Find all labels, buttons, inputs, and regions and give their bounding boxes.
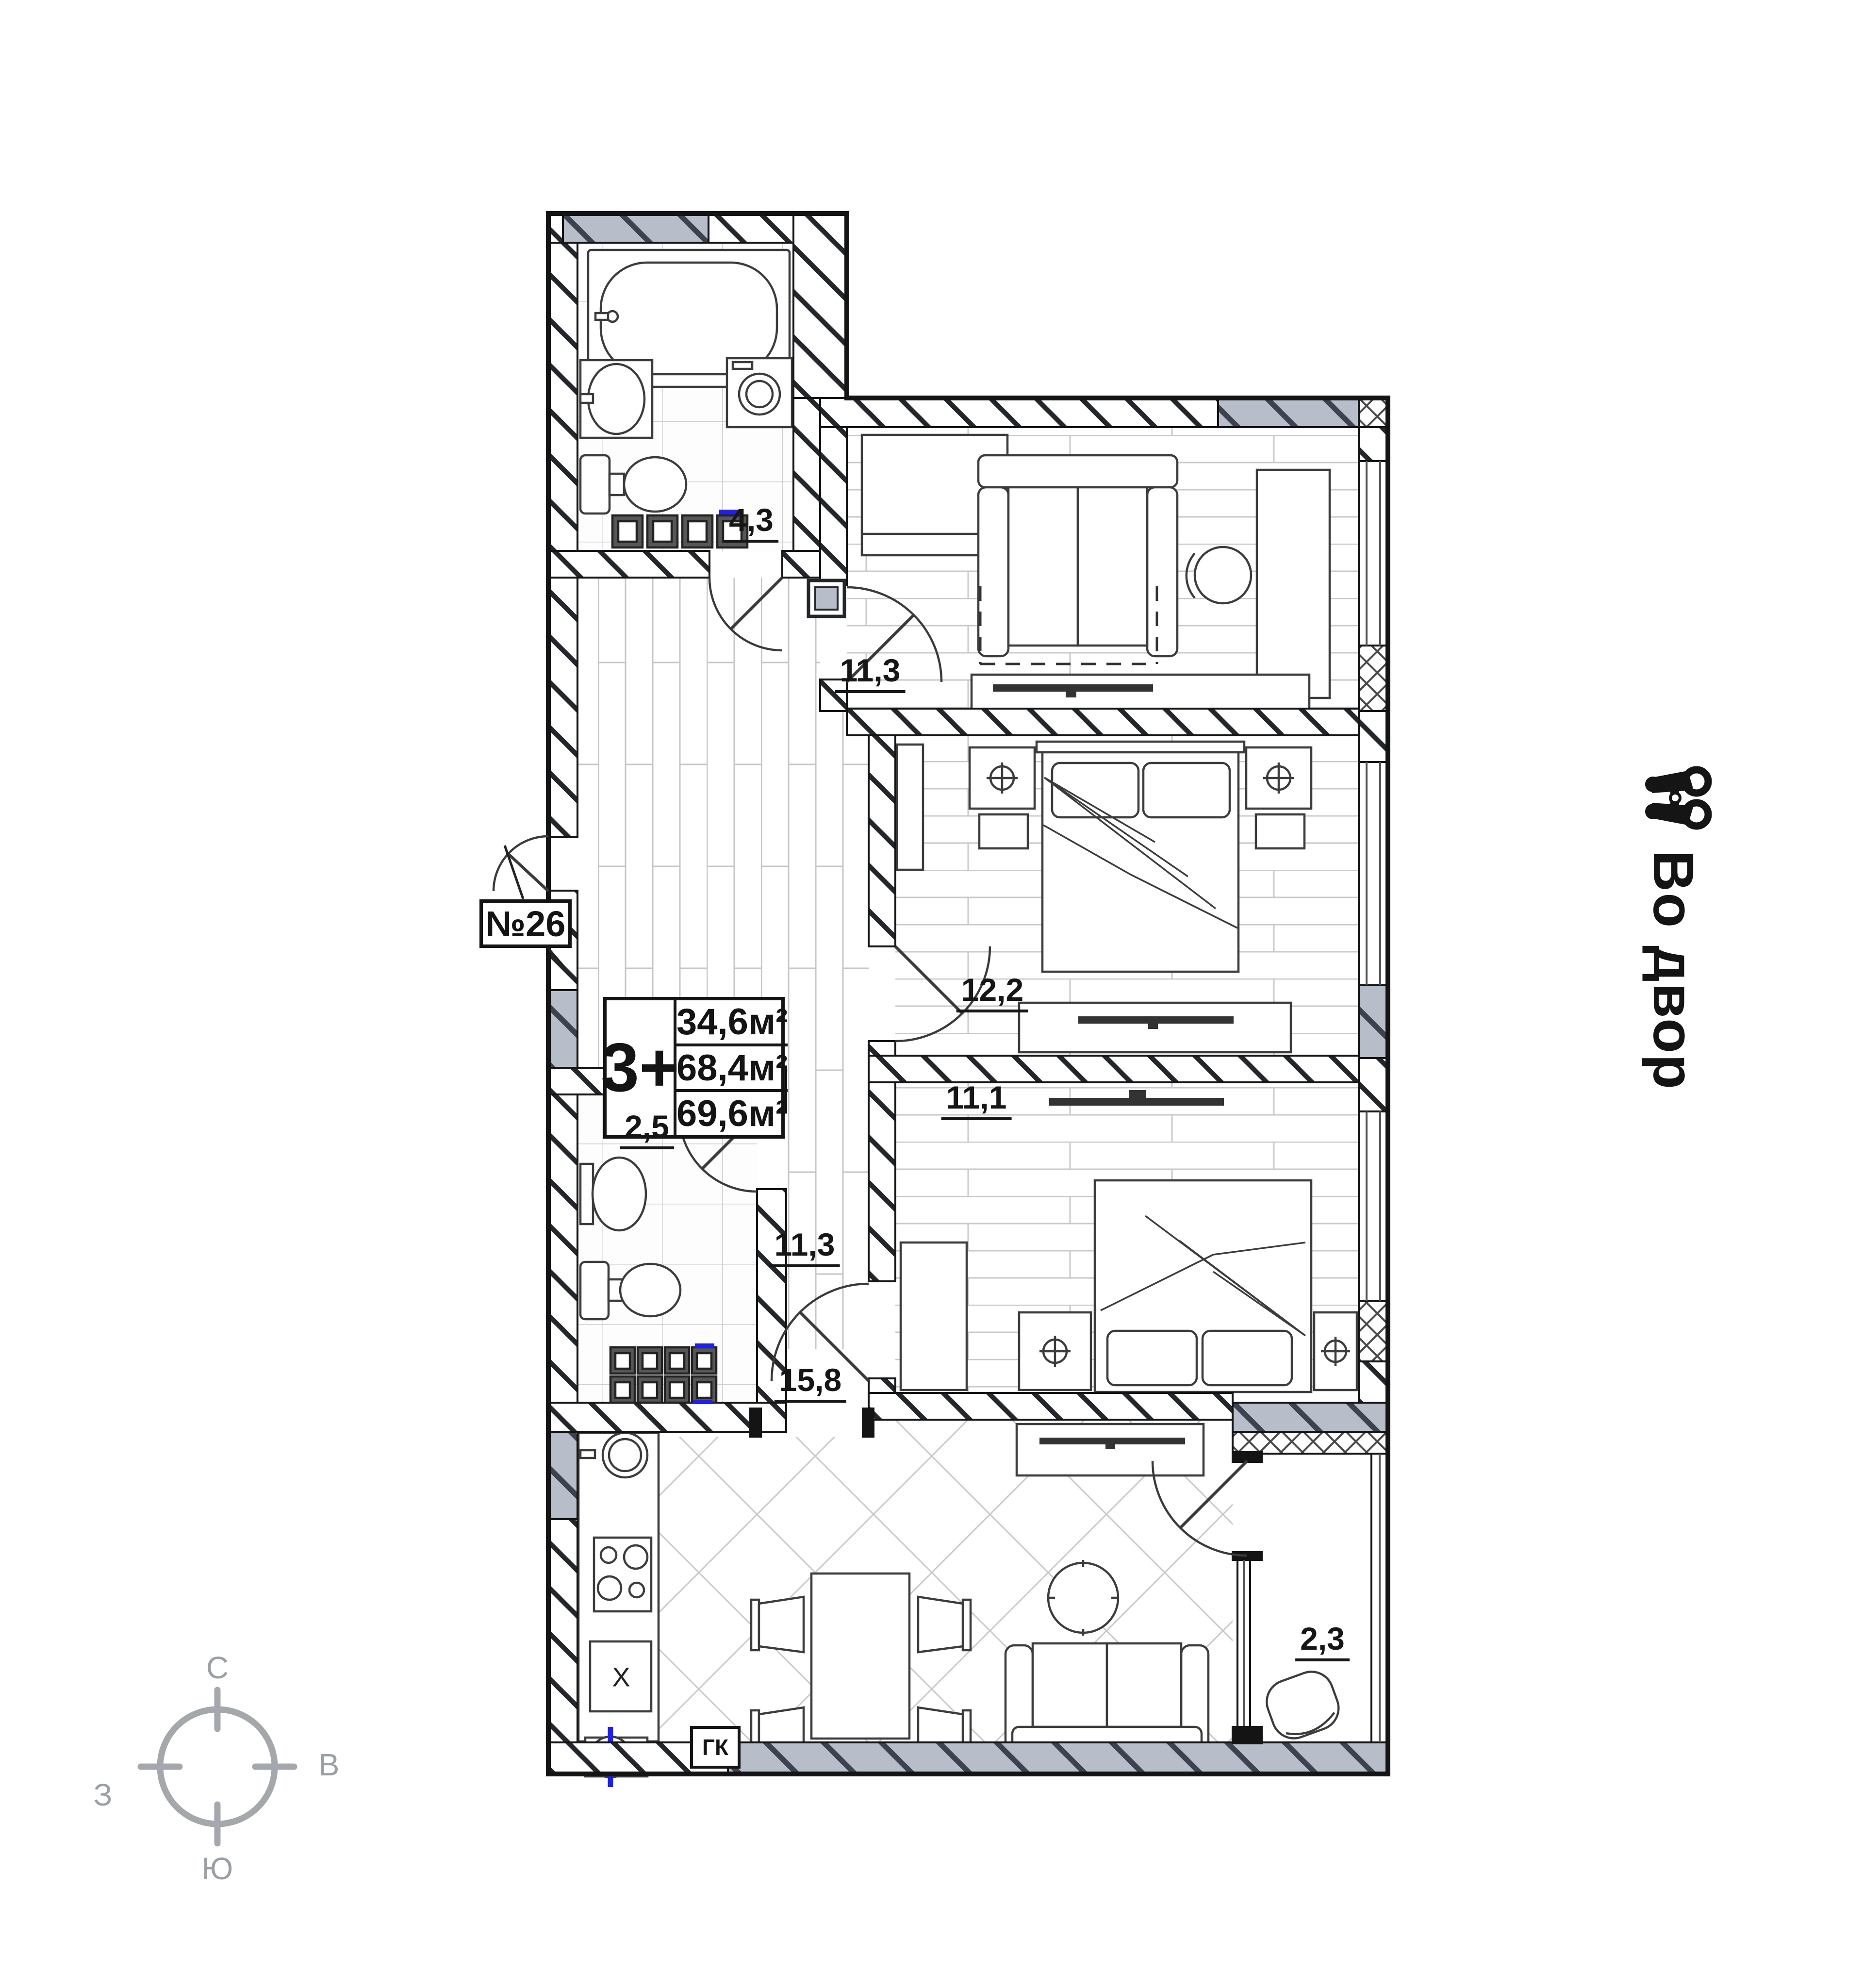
floorplan-page: №26 3+ 34,6м² 68,4м² 69,6м² 4,3 11,3 12,… — [0, 0, 1863, 1988]
room-label-bathroom: 4,3 — [724, 504, 778, 543]
bed-mid — [1037, 742, 1244, 972]
room-label-bedroom-mid: 12,2 — [956, 974, 1028, 1012]
cabinet-mid — [897, 745, 923, 870]
washing-machine — [727, 358, 792, 427]
compass-south-label: Ю — [202, 1853, 233, 1884]
living-tv-cabinet — [1017, 1424, 1204, 1475]
compass-north-label: С — [206, 1652, 229, 1683]
dresser-tv-mid — [1019, 1003, 1291, 1052]
living-area-value: 34,6м² — [676, 1000, 788, 1046]
tv-stand-top-room — [972, 675, 1309, 710]
bed-low — [1095, 1180, 1311, 1392]
dining-table — [811, 1574, 909, 1739]
compass-east-label: В — [319, 1749, 340, 1780]
desk — [1257, 470, 1330, 698]
bath-sink — [580, 360, 652, 438]
binoculars-icon — [1645, 770, 1708, 826]
wardrobe-low-room — [901, 1242, 967, 1390]
total-area-value: 69,6м² — [676, 1092, 788, 1135]
apartment-area-value: 68,4м² — [676, 1046, 788, 1093]
compass-west-label: З — [94, 1779, 113, 1810]
gas-boiler-label: ГК — [690, 1726, 741, 1769]
bath-toilet — [580, 455, 686, 514]
compass-rose — [141, 1690, 294, 1843]
room-label-top-room: 11,3 — [835, 654, 906, 693]
floor-plan-drawing — [0, 0, 1863, 1988]
view-direction-text: Во двор — [1640, 850, 1706, 1090]
sofa-top-room — [978, 455, 1177, 656]
fridge-label: X — [612, 1661, 630, 1693]
room-label-hallway: 11,3 — [770, 1228, 840, 1267]
room-label-bedroom-low: 11,1 — [941, 1081, 1012, 1120]
vent-shaft — [808, 580, 844, 616]
room-label-wc: 2,5 — [620, 1110, 674, 1149]
apartment-number-badge: №26 — [479, 899, 572, 948]
room-label-kitchen-living: 15,8 — [775, 1364, 846, 1403]
room-label-balcony: 2,3 — [1295, 1623, 1350, 1661]
kitchen-counter — [578, 1433, 659, 1741]
